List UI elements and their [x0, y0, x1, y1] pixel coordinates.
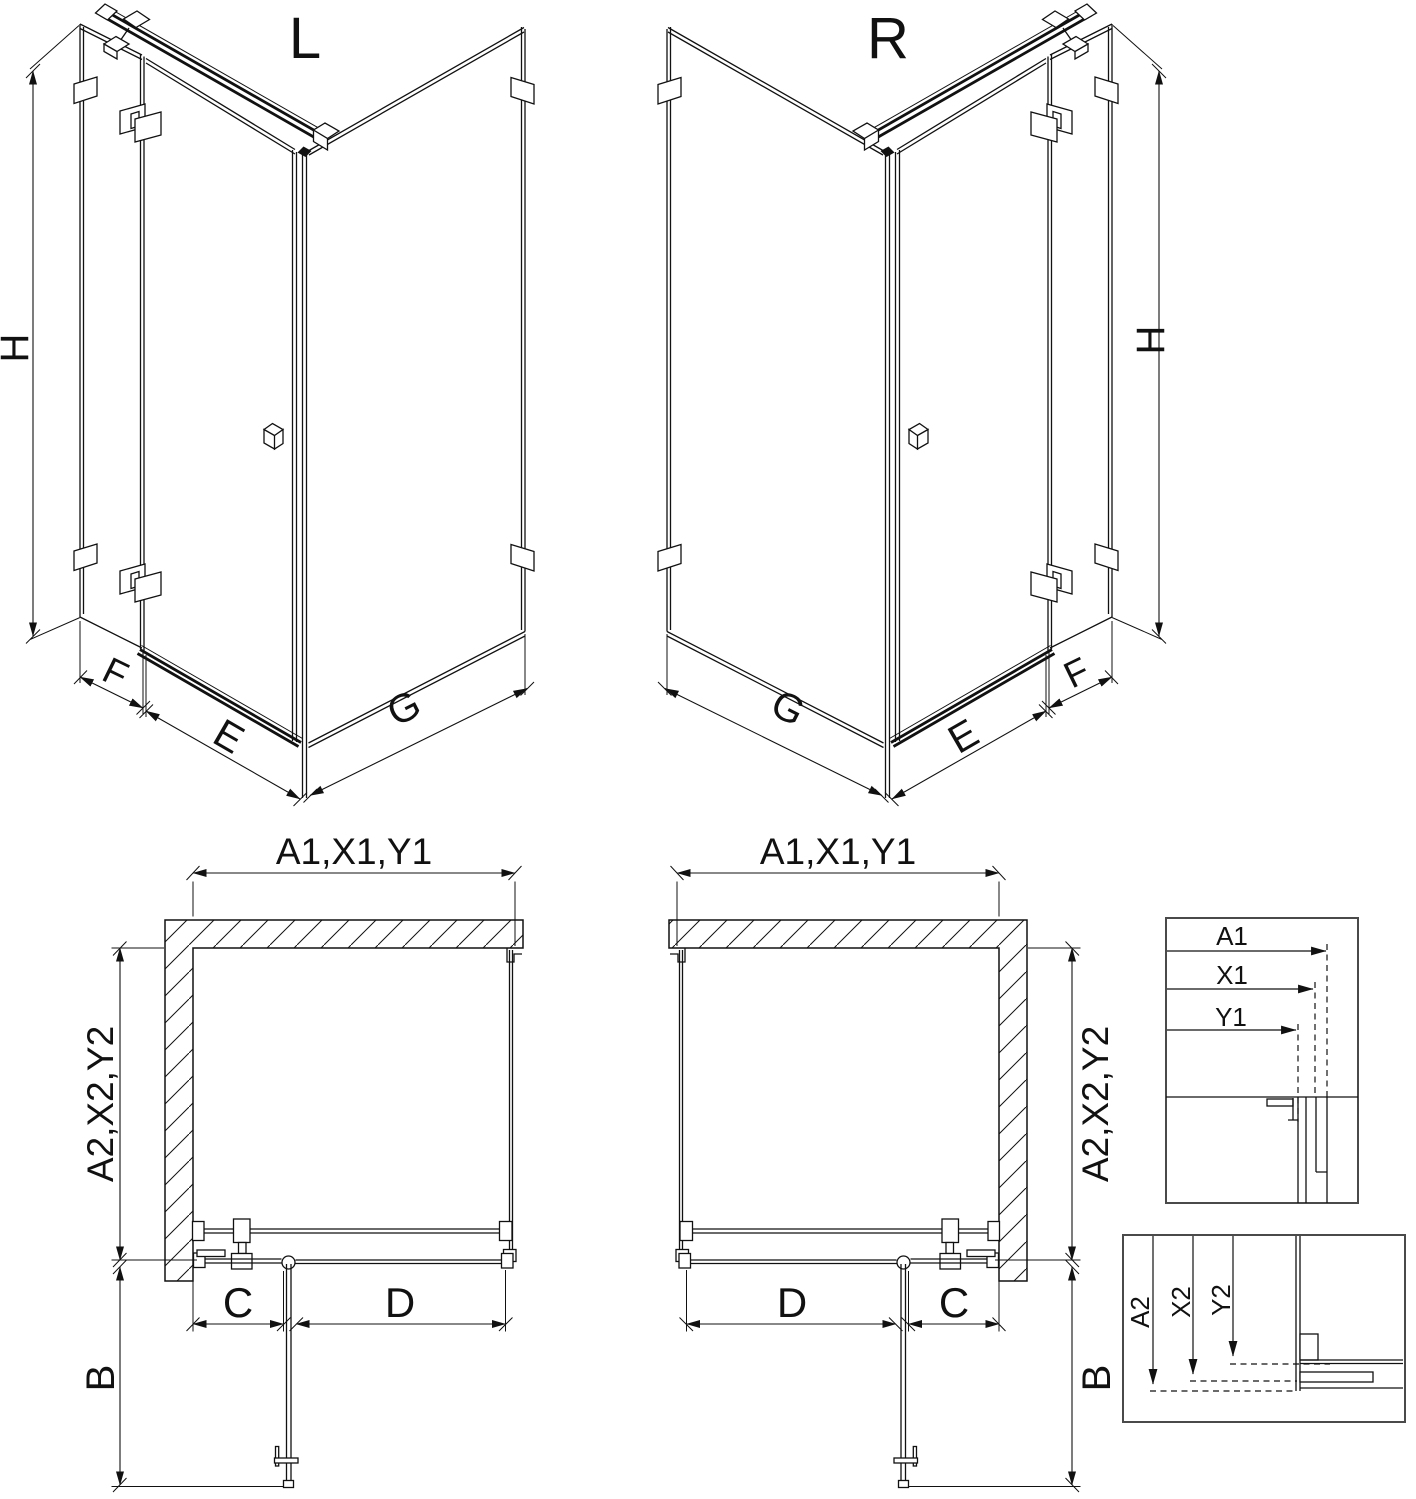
detail-depth-x2-label: X2: [1166, 1286, 1196, 1318]
detail-box-depth: A2 X2 Y2: [1123, 1235, 1405, 1422]
dim-side-panel-left: F: [96, 649, 134, 696]
plan-left-door-swing-label: B: [79, 1365, 123, 1392]
variant-right-label: R: [867, 6, 909, 71]
plan-left-fixed-segment-label: C: [223, 1279, 253, 1326]
plan-left-door-segment-label: D: [385, 1279, 415, 1326]
wall-right-plan: [669, 920, 1027, 1281]
detail-width-y1-label: Y1: [1215, 1002, 1247, 1032]
dim-door-left: E: [206, 711, 251, 762]
wall-left-plan: [165, 920, 523, 1281]
plan-right-door-segment-label: D: [777, 1279, 807, 1326]
dim-height-left: H: [0, 334, 37, 363]
plan-left-depth-label: A2,X2,Y2: [80, 1026, 121, 1182]
iso-view-left: L H F E G: [0, 4, 534, 806]
detail-depth-y2-label: Y2: [1206, 1284, 1236, 1316]
variant-left-label: L: [289, 6, 321, 71]
plan-right-width-label: A1,X1,Y1: [760, 831, 916, 872]
dim-height-right: H: [1129, 326, 1173, 355]
iso-view-right: R H F E G: [658, 4, 1173, 806]
detail-box-width: A1 X1 Y1: [1166, 918, 1358, 1203]
detail-width-x1-label: X1: [1216, 960, 1248, 990]
shower-enclosure-dimension-sheet: L H F E G R H F E G A1,X1,Y1 A2,X2,Y2 B …: [0, 0, 1416, 1499]
plan-view-right: A1,X1,Y1 A2,X2,Y2 B C D: [669, 831, 1119, 1492]
plan-left-width-label: A1,X1,Y1: [276, 831, 432, 872]
technical-drawing: L H F E G R H F E G A1,X1,Y1 A2,X2,Y2 B …: [0, 0, 1416, 1499]
detail-depth-a2-label: A2: [1125, 1296, 1155, 1328]
plan-right-door-swing-label: B: [1075, 1365, 1119, 1392]
detail-width-a1-label: A1: [1216, 921, 1248, 951]
plan-right-depth-label: A2,X2,Y2: [1075, 1026, 1116, 1182]
plan-right-fixed-segment-label: C: [939, 1279, 969, 1326]
plan-view-left: A1,X1,Y1 A2,X2,Y2 B C D: [79, 831, 523, 1492]
dim-door-right: E: [941, 711, 986, 762]
dim-side-panel-right: F: [1057, 649, 1095, 696]
